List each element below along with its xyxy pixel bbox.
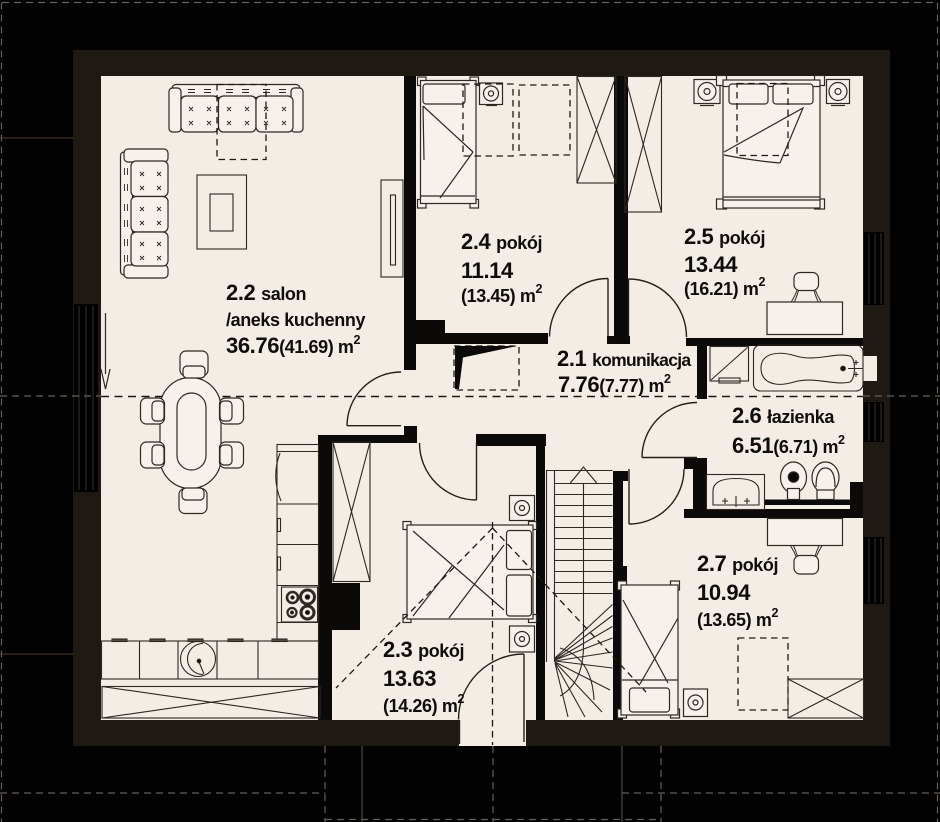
- svg-text:(16.21) m2: (16.21) m2: [684, 275, 765, 299]
- svg-text:13.44: 13.44: [684, 252, 738, 277]
- svg-text:/aneks kuchenny: /aneks kuchenny: [226, 310, 365, 330]
- svg-text:7.76(7.77) m2: 7.76(7.77) m2: [558, 372, 671, 397]
- svg-text:2.7 pokój: 2.7 pokój: [697, 551, 778, 576]
- svg-text:11.14: 11.14: [461, 258, 514, 283]
- svg-text:36.76(41.69) m2: 36.76(41.69) m2: [226, 333, 361, 358]
- svg-text:(13.65) m2: (13.65) m2: [697, 606, 778, 630]
- svg-text:(14.26) m2: (14.26) m2: [383, 692, 464, 716]
- svg-text:2.5 pokój: 2.5 pokój: [684, 224, 765, 249]
- svg-text:13.63: 13.63: [383, 666, 436, 691]
- svg-text:6.51(6.71) m2: 6.51(6.71) m2: [732, 433, 845, 458]
- svg-text:2.2 salon: 2.2 salon: [226, 280, 306, 305]
- svg-text:(13.45) m2: (13.45) m2: [461, 282, 542, 306]
- svg-text:2.1 komunikacja: 2.1 komunikacja: [557, 346, 691, 371]
- svg-text:2.4 pokój: 2.4 pokój: [461, 229, 542, 254]
- svg-text:10.94: 10.94: [697, 580, 751, 605]
- svg-text:2.3 pokój: 2.3 pokój: [383, 637, 464, 662]
- svg-text:2.6 łazienka: 2.6 łazienka: [732, 403, 835, 428]
